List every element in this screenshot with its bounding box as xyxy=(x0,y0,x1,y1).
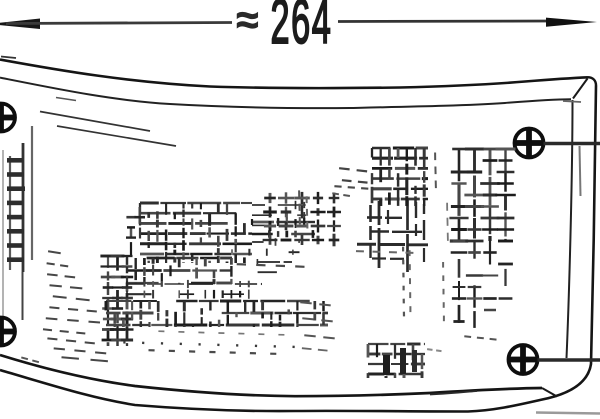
svg-text:264: 264 xyxy=(271,0,333,57)
svg-text:≈: ≈ xyxy=(237,0,259,43)
